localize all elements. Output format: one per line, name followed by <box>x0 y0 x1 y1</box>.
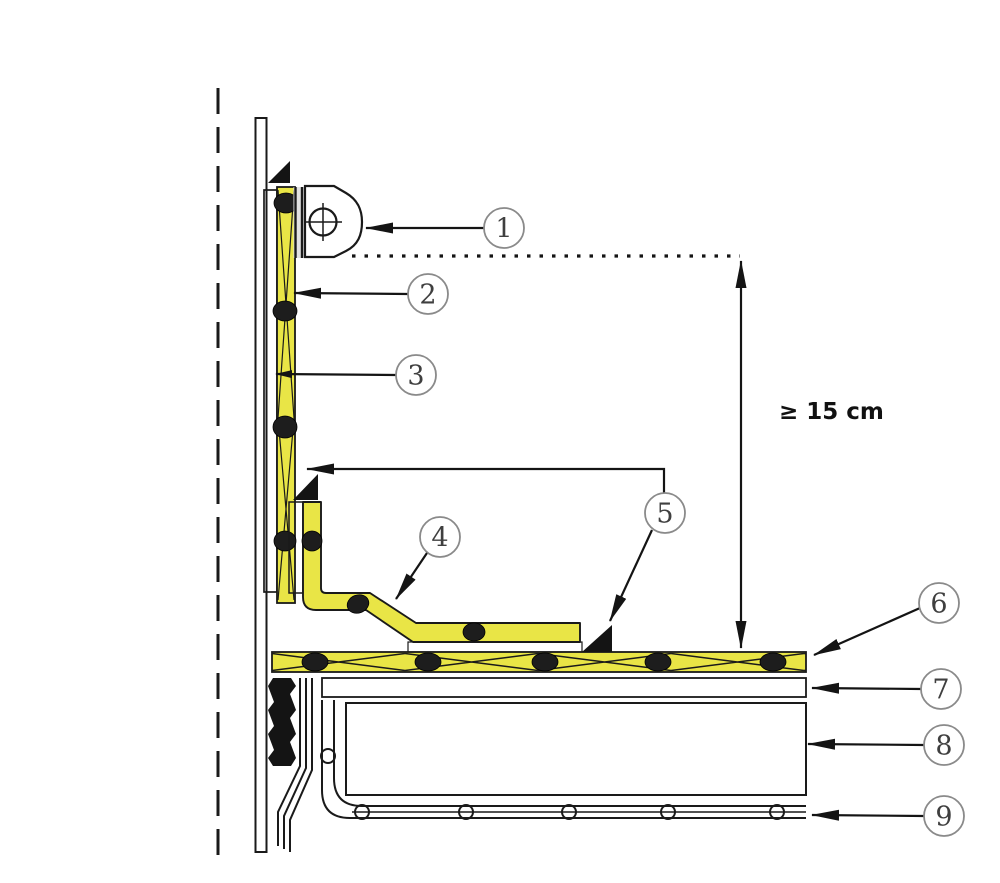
callout-2: 2 <box>408 274 448 314</box>
weld-spot <box>274 531 296 551</box>
weld-spot <box>302 653 328 671</box>
weld-spot <box>415 653 441 671</box>
callout-1: 1 <box>484 208 524 248</box>
callout-9-label: 9 <box>935 801 952 832</box>
weld-spot <box>273 416 297 438</box>
callout-4-label: 4 <box>431 522 448 553</box>
dimension-line: ≥ 15 cm <box>741 261 884 648</box>
fastener-crosshair-icon <box>304 203 342 241</box>
weld-spot <box>273 301 297 321</box>
callout-8: 8 <box>924 725 964 765</box>
weld-spot <box>532 653 558 671</box>
insulation-layer <box>346 703 806 795</box>
termination-profile <box>294 186 363 258</box>
callout-9-leader <box>812 815 924 816</box>
callout-7-leader <box>812 688 921 689</box>
roof-membrane-layer <box>272 652 806 672</box>
compressible-seal-strip <box>268 678 296 766</box>
weld-spot <box>302 531 322 551</box>
callout-1-label: 1 <box>495 213 512 244</box>
sealant-wedge-mid <box>293 474 318 500</box>
callout-7: 7 <box>921 669 961 709</box>
sealant-wedge-top <box>268 161 290 183</box>
bonding-hatch-horizontal <box>408 642 582 652</box>
callout-4: 4 <box>420 517 460 557</box>
callout-2-leader <box>294 293 408 294</box>
construction-detail-drawing: ≥ 15 cm 1 2 3 4 5 6 7 <box>0 0 1000 883</box>
separation-layer <box>322 678 806 697</box>
callout-5-leader-b <box>610 530 652 621</box>
callout-4-leader <box>396 550 429 599</box>
callout-leaders <box>276 228 924 816</box>
callout-9: 9 <box>924 796 964 836</box>
dimension-label: ≥ 15 cm <box>779 399 884 425</box>
callout-6-label: 6 <box>930 588 947 619</box>
callout-5: 5 <box>645 493 685 533</box>
sealant-wedge-roof <box>582 625 612 652</box>
fastener-circle <box>321 749 335 763</box>
callout-3: 3 <box>396 355 436 395</box>
construction-detail-figure: ≥ 15 cm 1 2 3 4 5 6 7 <box>0 0 1000 883</box>
weld-spot <box>463 623 485 641</box>
weld-spot <box>760 653 786 671</box>
callout-7-label: 7 <box>932 674 949 705</box>
wall-panel <box>256 118 267 852</box>
callout-3-label: 3 <box>407 360 424 391</box>
callout-5-label: 5 <box>656 498 673 529</box>
callout-6: 6 <box>919 583 959 623</box>
callout-3-leader <box>276 374 396 375</box>
callout-8-label: 8 <box>935 730 952 761</box>
callout-5-leader-a <box>307 469 664 493</box>
callout-8-leader <box>808 744 924 745</box>
weld-spot <box>645 653 671 671</box>
callout-6-leader <box>814 608 920 655</box>
callout-2-label: 2 <box>419 279 436 310</box>
vapour-barrier-deck-layer <box>321 700 806 819</box>
